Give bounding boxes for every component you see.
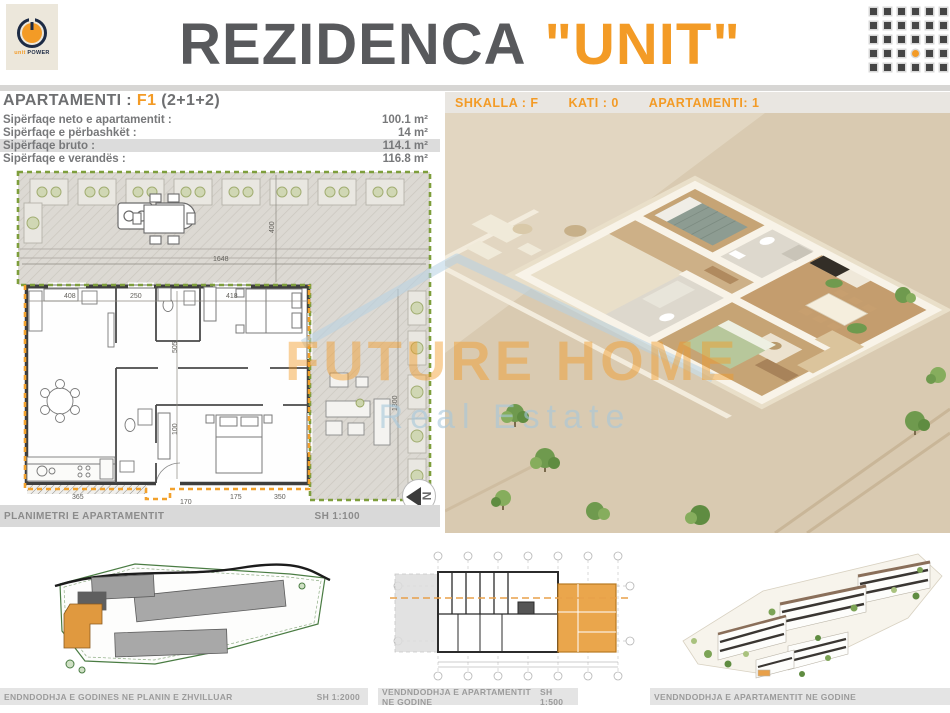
render-header-bar: SHKALLA : F KATI : 0 APARTAMENTI: 1 — [445, 92, 950, 113]
table-row: Sipërfaqe bruto : 114.1 m² — [0, 139, 440, 152]
apartment-code: F1 — [137, 92, 156, 109]
highlighted-apartment-plan — [558, 584, 616, 652]
dim-top-3: 418 — [226, 293, 238, 300]
north-letter: N — [420, 492, 434, 501]
apartment-title: APARTAMENTI : F1 (2+1+2) — [3, 92, 440, 112]
dim-terrace-width: 1648 — [213, 256, 229, 263]
caption-building-plan: VENDNDODHJA E APARTAMENTIT NE GODINE SH … — [378, 688, 578, 705]
header-shkalla: SHKALLA : F — [455, 96, 539, 110]
caption-complex-render: VENDNDODHJA E APARTAMENTIT NE GODINE — [650, 688, 950, 705]
header-kati: KATI : 0 — [569, 96, 619, 110]
kitchen-counter — [27, 457, 115, 481]
caption-text: VENDNDODHJA E APARTAMENTIT NE GODINE — [654, 692, 856, 702]
area-table: Sipërfaqe neto e apartamentit : 100.1 m²… — [0, 113, 440, 165]
title-main: REZIDENCA — [179, 11, 526, 78]
plan-footer-label: PLANIMETRI E APARTAMENTIT — [4, 511, 164, 522]
header-divider — [0, 85, 950, 91]
table-row: Sipërfaqe neto e apartamentit : 100.1 m² — [0, 113, 440, 126]
dim-left-1: 505 — [172, 341, 179, 353]
highlighted-unit-3d — [758, 670, 770, 676]
row-value: 114.1 m² — [383, 140, 428, 152]
plan-footer-scale: SH 1:100 — [315, 511, 360, 522]
presentation-sheet: unit POWER REZIDENCA "UNIT" APARTAMENTI … — [0, 0, 950, 713]
row-label: Sipërfaqe neto e apartamentit : — [3, 114, 172, 126]
building-core-plan — [438, 572, 558, 652]
dim-top-1: 408 — [64, 293, 76, 300]
floor-plan-drawing: 1648 400 1300 408 250 418 505 100 365 17… — [8, 163, 440, 505]
isometric-3d-render — [445, 113, 950, 533]
power-icon — [17, 18, 47, 48]
apartment-rooms: (2+1+2) — [161, 92, 220, 109]
plan-footer-bar: PLANIMETRI E APARTAMENTIT SH 1:100 — [0, 505, 440, 527]
row-value: 100.1 m² — [382, 114, 428, 126]
logo-word-2: POWER — [27, 50, 49, 56]
row-value: 14 m² — [398, 127, 428, 139]
apartment-label: APARTAMENTI : — [3, 92, 132, 109]
decorative-dot-grid — [870, 8, 950, 80]
accent-dot — [912, 50, 919, 57]
dim-top-2: 250 — [130, 293, 142, 300]
table-row: Sipërfaqe e përbashkët : 14 m² — [0, 126, 440, 139]
logo-text: unit POWER — [14, 50, 49, 56]
dim-veranda-height: 1300 — [392, 395, 399, 411]
company-logo: unit POWER — [6, 4, 58, 70]
caption-scale: SH 1:500 — [540, 687, 570, 707]
caption-text: VENDNDODHJA E APARTAMENTIT NE GODINE — [382, 687, 540, 707]
dim-left-2: 100 — [172, 423, 179, 435]
dim-bottom-1: 365 — [72, 494, 84, 501]
dim-terrace-depth: 400 — [269, 221, 276, 233]
complex-render-thumbnail — [668, 546, 948, 686]
header-apartamenti: APARTAMENTI: 1 — [649, 96, 760, 110]
logo-word-1: unit — [14, 50, 25, 56]
row-label: Sipërfaqe e përbashkët : — [3, 127, 137, 139]
row-label: Sipërfaqe bruto : — [3, 140, 95, 152]
dim-bottom-4: 350 — [274, 494, 286, 501]
site-plan-thumbnail — [40, 546, 340, 686]
caption-text: ENDNDODHJA E GODINES NE PLANIN E ZHVILLU… — [4, 692, 233, 702]
building-plan-thumbnail — [380, 546, 640, 686]
caption-site-plan: ENDNDODHJA E GODINES NE PLANIN E ZHVILLU… — [0, 688, 368, 705]
dim-bottom-3: 175 — [230, 494, 242, 501]
page-title: REZIDENCA "UNIT" — [120, 6, 800, 82]
title-accent: "UNIT" — [545, 11, 741, 78]
caption-scale: SH 1:2000 — [317, 692, 360, 702]
